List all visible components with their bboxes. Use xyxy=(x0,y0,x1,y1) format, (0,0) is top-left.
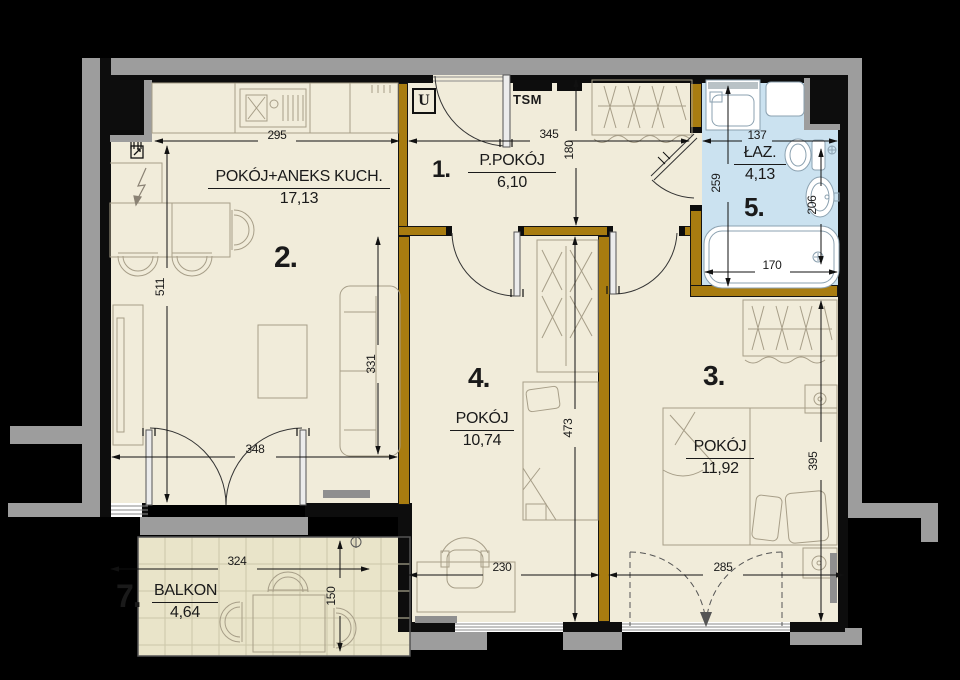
toilet-tank xyxy=(812,140,825,170)
chair xyxy=(232,210,254,250)
u-symbol: U xyxy=(412,88,436,114)
room-name: P.POKÓJ xyxy=(468,152,556,173)
dim-331: 331 xyxy=(364,354,378,373)
basin-tap xyxy=(834,193,839,201)
balcony-drain-icon xyxy=(351,536,361,548)
room-number-4: 4. xyxy=(468,362,489,394)
room3-door-leaf xyxy=(610,232,616,294)
room-area: 11,92 xyxy=(686,459,754,478)
room-label-bedroom3: POKÓJ 11,92 xyxy=(686,438,754,478)
room-area: 17,13 xyxy=(208,189,390,208)
dim-348: 348 xyxy=(245,442,264,456)
pillow xyxy=(751,495,782,542)
room-area: 4,64 xyxy=(152,603,218,622)
desk-room2 xyxy=(110,203,230,257)
radiators xyxy=(323,490,837,623)
room-name: ŁAZ. xyxy=(734,144,786,165)
dim-150: 150 xyxy=(324,586,338,605)
dim-345: 345 xyxy=(539,127,558,141)
coffee-table xyxy=(258,325,307,398)
balcony-table xyxy=(253,595,325,652)
dim-180: 180 xyxy=(562,140,576,159)
french-window-arrow xyxy=(700,612,712,627)
room-label-bathroom: ŁAZ. 4,13 xyxy=(734,144,786,184)
lightning-bolt-icon xyxy=(137,168,146,200)
room-area: 10,74 xyxy=(450,431,514,450)
chair xyxy=(220,602,242,642)
room-number-3: 3. xyxy=(703,360,724,392)
chair xyxy=(268,572,308,592)
room-number-5: 5. xyxy=(744,192,764,223)
dim-473: 473 xyxy=(561,418,575,437)
dim-511: 511 xyxy=(153,278,167,296)
chair xyxy=(118,253,158,276)
balcony-door-swing-left xyxy=(150,428,226,505)
dim-230: 230 xyxy=(492,560,511,574)
bathroom-door-swing xyxy=(652,180,694,198)
room-number-7: 7. xyxy=(116,578,141,615)
room-name: POKÓJ xyxy=(450,410,514,431)
room-label-hallway: P.POKÓJ 6,10 xyxy=(468,152,556,192)
floorplan-canvas: 1. 2. 3. 4. 5. 7. P.POKÓJ 6,10 POKÓJ+ANE… xyxy=(0,0,960,680)
dim-259: 259 xyxy=(709,173,723,192)
pillow xyxy=(785,490,829,543)
radiator-room3 xyxy=(830,553,837,603)
plan-linework xyxy=(0,0,960,680)
room-label-balcony: BALKON 4,64 xyxy=(152,582,218,622)
bed-room4 xyxy=(523,382,598,520)
room-number-2: 2. xyxy=(274,241,297,275)
room-name: POKÓJ xyxy=(686,438,754,459)
dim-295: 295 xyxy=(267,128,286,142)
room-area: 6,10 xyxy=(468,173,556,192)
room-name: BALKON xyxy=(152,582,218,603)
room-label-bedroom4: POKÓJ 10,74 xyxy=(450,410,514,450)
bathroom-fixtures xyxy=(704,80,839,288)
dim-285: 285 xyxy=(713,560,732,574)
balcony-door-swing-right xyxy=(226,428,302,505)
balcony-door-leaf xyxy=(146,430,152,505)
room-area: 4,13 xyxy=(734,165,786,184)
radiator-room2 xyxy=(323,490,370,498)
dim-170: 170 xyxy=(762,258,781,272)
wardrobe-room4 xyxy=(537,240,598,372)
kitchen-hob xyxy=(372,85,390,93)
room-number-1: 1. xyxy=(432,156,450,184)
room4-door-leaf xyxy=(514,232,520,296)
dim-137: 137 xyxy=(747,128,766,142)
radiator-room4 xyxy=(415,616,457,623)
tsm-label: TSM xyxy=(513,92,542,107)
wardrobe-room3 xyxy=(743,300,837,356)
chair xyxy=(172,253,212,276)
entrance-door-leaf xyxy=(503,75,510,147)
dim-206: 206 xyxy=(805,195,819,214)
window-glazing xyxy=(111,77,790,630)
room-name: POKÓJ+ANEKS KUCH. xyxy=(208,168,390,189)
chair xyxy=(334,608,356,648)
dim-324: 324 xyxy=(227,554,246,568)
room4-door-swing xyxy=(452,233,516,296)
room-label-living-kitchen: POKÓJ+ANEKS KUCH. 17,13 xyxy=(208,168,390,208)
office-chair xyxy=(447,550,483,588)
room3-door-swing xyxy=(615,233,677,294)
dim-395: 395 xyxy=(806,451,820,470)
balcony-door-leaf xyxy=(300,430,306,505)
entrance-door-swing xyxy=(435,76,505,146)
bath-cabinet xyxy=(766,82,804,116)
electrical-symbols xyxy=(134,168,146,205)
